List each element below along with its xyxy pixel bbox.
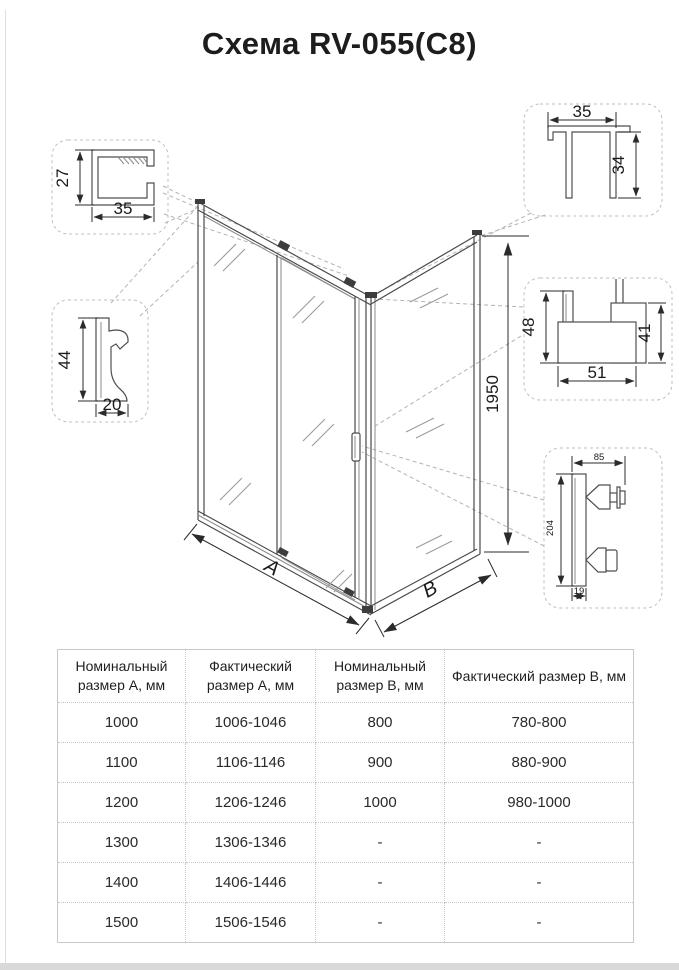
table-cell: - [316, 903, 445, 943]
table-cell: 1200 [58, 783, 186, 823]
dim-35b-label: 35 [573, 102, 592, 121]
table-cell: 1500 [58, 903, 186, 943]
dim-41-label: 41 [635, 324, 654, 343]
dim-34-label: 34 [609, 156, 628, 175]
dim-a-label: A [260, 554, 283, 580]
dim-35-label: 35 [114, 199, 133, 218]
column-header: Номинальный размер В, мм [316, 650, 445, 703]
table-cell: - [445, 863, 634, 903]
dim-48-label: 48 [519, 318, 538, 337]
table-cell: 1006-1046 [186, 703, 316, 743]
table-header-row: Номинальный размер А, мм Фактический раз… [58, 650, 634, 703]
dim-204-label: 204 [545, 520, 556, 536]
table-row: 1000 1006-1046 800 780-800 [58, 703, 634, 743]
table-cell: - [316, 863, 445, 903]
table-row: 1200 1206-1246 1000 980-1000 [58, 783, 634, 823]
table-cell: 1100 [58, 743, 186, 783]
callout-top-track-profile: 27 35 [52, 140, 168, 234]
corner-cap [365, 292, 377, 298]
side-top-cap [472, 230, 482, 235]
door-handle [352, 433, 360, 461]
table-cell: - [316, 823, 445, 863]
table-cell: 1406-1446 [186, 863, 316, 903]
dim-20-label: 20 [103, 395, 122, 414]
dim-85-label: 85 [594, 452, 605, 463]
table-row: 1100 1106-1146 900 880-900 [58, 743, 634, 783]
table-cell: 1206-1246 [186, 783, 316, 823]
callout-top-corner-profile: 35 34 [524, 102, 662, 216]
table-cell: 880-900 [445, 743, 634, 783]
corner-bottom-cap [362, 606, 373, 613]
enclosure-drawing [195, 199, 482, 615]
table-cell: - [445, 903, 634, 943]
column-header: Фактический размер В, мм [445, 650, 634, 703]
column-header: Номинальный размер А, мм [58, 650, 186, 703]
schema-diagram: 1950 A B 27 35 44 20 [0, 0, 679, 650]
table-cell: 900 [316, 743, 445, 783]
callout-bottom-rail-profile: 48 41 51 [519, 278, 672, 400]
table-cell: - [445, 823, 634, 863]
roller-bracket [277, 240, 290, 251]
table-cell: 980-1000 [445, 783, 634, 823]
table-row: 1300 1306-1346 - - [58, 823, 634, 863]
table-cell: 1400 [58, 863, 186, 903]
page: { "title": "Схема RV-055(C8)", "colors":… [0, 0, 679, 970]
size-table: Номинальный размер А, мм Фактический раз… [57, 649, 634, 943]
column-header: Фактический размер А, мм [186, 650, 316, 703]
table-cell: 800 [316, 703, 445, 743]
table-cell: 1506-1546 [186, 903, 316, 943]
table-cell: 1000 [58, 703, 186, 743]
dim-44-label: 44 [55, 351, 74, 370]
roller-bracket [343, 277, 356, 288]
table-cell: 780-800 [445, 703, 634, 743]
table-row: 1400 1406-1446 - - [58, 863, 634, 903]
dim-19-label: 19 [574, 586, 585, 597]
dim-27-label: 27 [53, 169, 72, 188]
table-row: 1500 1506-1546 - - [58, 903, 634, 943]
top-left-cap [195, 199, 205, 204]
table-cell: 1000 [316, 783, 445, 823]
table-cell: 1306-1346 [186, 823, 316, 863]
page-bottom-edge-bar [0, 963, 679, 970]
table-cell: 1106-1146 [186, 743, 316, 783]
table-cell: 1300 [58, 823, 186, 863]
callout-handle: 85 204 19 [544, 448, 662, 608]
dim-51-label: 51 [588, 363, 607, 382]
dim-b-label: B [419, 577, 441, 603]
callout-wall-profile: 44 20 [52, 300, 148, 422]
dim-height-label: 1950 [483, 375, 502, 413]
